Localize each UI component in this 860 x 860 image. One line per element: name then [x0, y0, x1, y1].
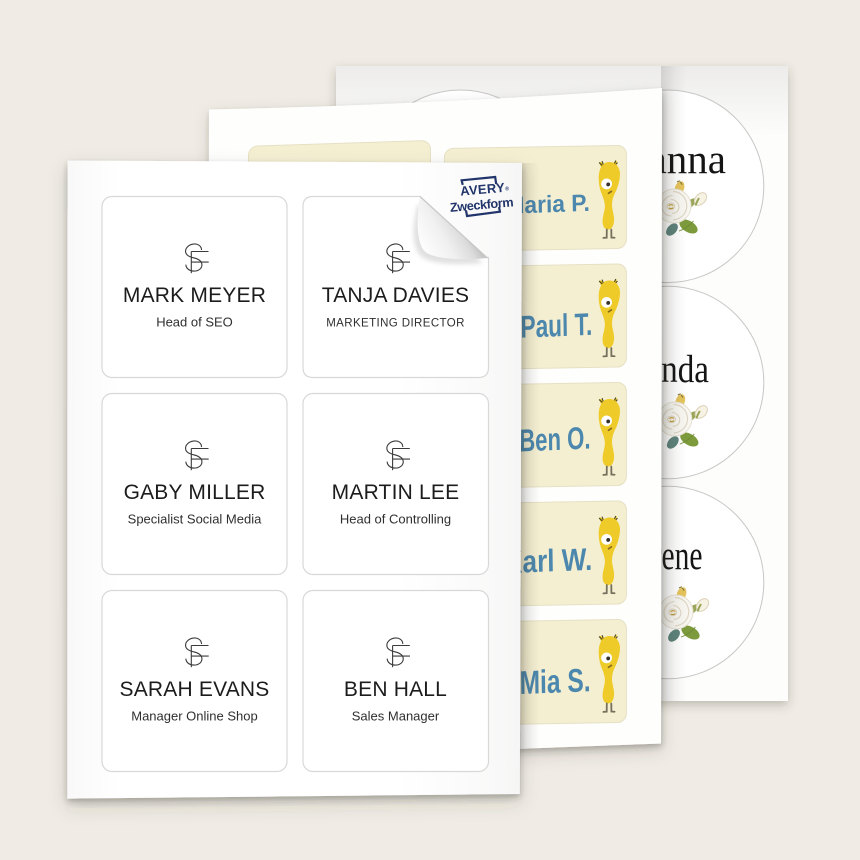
- svg-text:®: ®: [505, 185, 510, 192]
- svg-text:MARTIN LEE: MARTIN LEE: [332, 481, 460, 504]
- svg-text:Manager Online Shop: Manager Online Shop: [131, 708, 257, 723]
- svg-text:MARKETING DIRECTOR: MARKETING DIRECTOR: [326, 317, 465, 329]
- svg-text:SARAH EVANS: SARAH EVANS: [119, 678, 269, 701]
- svg-text:GABY MILLER: GABY MILLER: [124, 481, 266, 504]
- svg-text:Head of SEO: Head of SEO: [156, 314, 233, 329]
- svg-text:Specialist Social Media: Specialist Social Media: [128, 511, 262, 526]
- svg-text:Head of Controlling: Head of Controlling: [340, 511, 451, 526]
- svg-text:Sales Manager: Sales Manager: [352, 708, 440, 723]
- svg-text:TANJA DAVIES: TANJA DAVIES: [322, 284, 470, 307]
- svg-text:BEN HALL: BEN HALL: [344, 678, 447, 701]
- svg-text:MARK MEYER: MARK MEYER: [123, 284, 266, 307]
